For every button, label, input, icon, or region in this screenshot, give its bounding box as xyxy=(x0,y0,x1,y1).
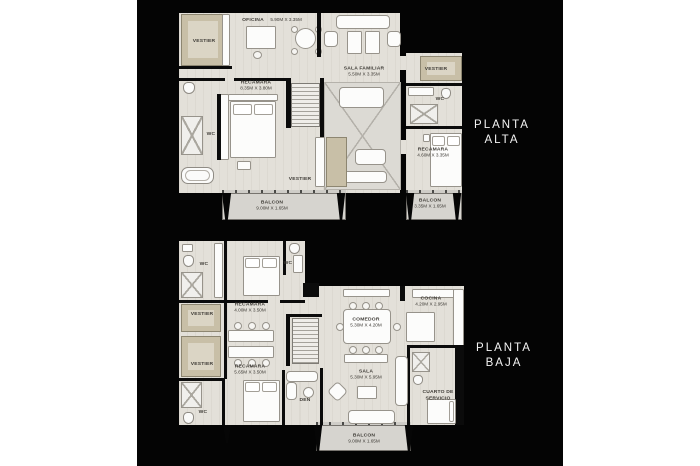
sofa xyxy=(286,382,297,400)
room-dims: 9.00M X 1.65M xyxy=(256,205,288,211)
room-name: VESTIER xyxy=(425,66,448,72)
room-dims: 5.90M X 3.35M xyxy=(270,17,302,23)
office-chair xyxy=(253,51,262,59)
coffee-table xyxy=(357,386,377,399)
wall xyxy=(400,286,405,301)
wall xyxy=(179,300,225,303)
pillow xyxy=(447,136,460,146)
wall xyxy=(286,314,290,366)
planta-alta-title: PLANTA ALTA xyxy=(471,118,533,148)
kitchen-counter xyxy=(453,289,464,347)
room-dims: 4.60M X 3.35M xyxy=(417,152,449,158)
shower xyxy=(181,272,203,298)
wall xyxy=(406,126,462,129)
desk-chair xyxy=(262,322,270,330)
dining-chair xyxy=(349,302,357,310)
room-name: DEN xyxy=(299,397,310,403)
pillow xyxy=(245,258,260,268)
room-label-balcon-baja: BALCON 9.00M X 1.65M xyxy=(348,432,380,444)
dining-chair xyxy=(349,346,357,354)
wall xyxy=(407,345,464,348)
room-name: VESTIER xyxy=(289,176,312,182)
room-dims: 5.30M X 5.95M xyxy=(350,374,382,380)
room-label-wc-w: WC xyxy=(207,131,216,137)
wall xyxy=(286,314,322,317)
room-name: VESTIER xyxy=(191,361,214,367)
floorplan-poster: VESTIER OFICINA 5.90M X 3.35M SALA FAMIL… xyxy=(137,0,563,466)
room-name: WC xyxy=(207,131,216,137)
wall xyxy=(222,378,225,425)
title-line: PLANTA xyxy=(473,341,535,356)
console xyxy=(344,354,388,363)
dining-chair xyxy=(336,323,344,331)
kitchen-island xyxy=(406,312,435,342)
dining-table xyxy=(339,87,384,108)
sofa xyxy=(341,171,387,183)
shower xyxy=(410,104,438,124)
sink-counter xyxy=(293,255,303,273)
building-foot xyxy=(222,425,232,443)
pillow xyxy=(245,382,260,392)
room-dims: 9.00M X 1.65M xyxy=(348,438,380,444)
toilet xyxy=(183,255,194,267)
wardrobe xyxy=(315,137,325,187)
room-dims: 8.35M X 3.80M xyxy=(240,85,272,91)
room-label-oficina: OFICINA 5.90M X 3.35M xyxy=(240,14,303,26)
toilet xyxy=(183,412,194,424)
room-label-wc-e: WC xyxy=(436,96,445,102)
dining-chair xyxy=(375,346,383,354)
room-label-wc-sw: WC xyxy=(199,409,208,415)
room-label-vestier-2: VESTIER xyxy=(191,361,214,367)
wall xyxy=(283,241,286,275)
dining-chair xyxy=(375,302,383,310)
room-dims: 4.00M X 3.50M xyxy=(234,307,266,313)
wall xyxy=(303,283,319,297)
pillow xyxy=(254,104,273,115)
room-label-wc-n: WC xyxy=(284,260,293,266)
toilet xyxy=(289,243,300,254)
desk-chair xyxy=(234,322,242,330)
wall xyxy=(320,368,323,425)
armchair xyxy=(324,31,338,47)
dining-chair xyxy=(362,302,370,310)
round-table xyxy=(295,28,316,49)
room-label-balcon-main-alta: BALCON 9.00M X 1.65M xyxy=(256,199,288,211)
room-name: WC xyxy=(284,260,293,266)
room-label-sala-familiar: SALA FAMILIAR 5.50M X 3.35M xyxy=(344,65,385,77)
bench xyxy=(237,161,251,170)
room-dims: 5.30M X 4.20M xyxy=(350,322,382,328)
room-label-vestier-center: VESTIER xyxy=(289,176,312,182)
pillow xyxy=(449,401,454,422)
desk xyxy=(228,346,274,358)
stairs xyxy=(292,318,319,364)
room-label-comedor: COMEDOR 5.30M X 4.20M xyxy=(350,316,382,328)
title-line: PLANTA xyxy=(471,118,533,133)
room-name: VESTIER xyxy=(193,38,216,44)
sofa xyxy=(355,149,386,165)
sofa xyxy=(286,371,318,382)
sink-counter xyxy=(408,87,434,96)
room-label-sala: SALA 5.30M X 5.95M xyxy=(350,368,382,380)
room-name: WC xyxy=(200,261,209,267)
wall xyxy=(406,83,462,86)
room-label-recamara-s: RECAMARA 5.65M X 3.50M xyxy=(234,363,266,375)
dining-chair xyxy=(393,323,401,331)
wall xyxy=(224,303,227,379)
room-label-balcon-e: BALCON 3.35M X 1.65M xyxy=(414,197,446,209)
desk xyxy=(228,330,274,342)
room-dims: 3.35M X 1.65M xyxy=(414,203,446,209)
room-name: VESTIER xyxy=(191,311,214,317)
dining-chair xyxy=(362,346,370,354)
room-label-cocina: COCINA 4.20M X 2.95M xyxy=(415,295,447,307)
room-name: WC xyxy=(199,409,208,415)
room-label-vestier-1: VESTIER xyxy=(191,311,214,317)
toilet xyxy=(413,375,423,385)
sink xyxy=(182,244,193,252)
bathtub xyxy=(181,167,214,184)
pillow xyxy=(262,382,277,392)
sofa xyxy=(348,410,395,424)
desk-chair xyxy=(248,322,256,330)
wall xyxy=(280,300,305,303)
wardrobe xyxy=(222,14,230,66)
shower xyxy=(181,116,203,155)
room-label-recamara-n: RECAMARA 4.00M X 3.50M xyxy=(234,301,266,313)
room-label-recamara-principal: RECAMARA 8.35M X 3.80M xyxy=(240,79,272,91)
room-label-vestier-nw: VESTIER xyxy=(193,38,216,44)
room-name-line2: SERVICIO xyxy=(422,395,453,401)
closet xyxy=(326,137,347,187)
shower xyxy=(412,352,430,372)
lounge-chair xyxy=(365,31,380,54)
planta-baja-title: PLANTA BAJA xyxy=(473,341,535,371)
pillow xyxy=(233,104,252,115)
bed-headboard xyxy=(228,94,278,101)
room-dims: 5.65M X 3.50M xyxy=(234,369,266,375)
room-label-recamara-e: RECAMARA 4.60M X 3.35M xyxy=(417,146,449,158)
nightstand xyxy=(423,134,430,142)
room-dims: 5.50M X 3.35M xyxy=(344,71,385,77)
room-label-den: DEN xyxy=(299,397,310,403)
wall xyxy=(179,66,232,69)
armchair xyxy=(387,31,401,47)
wall xyxy=(455,348,464,425)
room-name: WC xyxy=(436,96,445,102)
alta-door-opening xyxy=(400,56,406,70)
wall xyxy=(224,241,227,302)
chair xyxy=(291,26,298,33)
console xyxy=(343,289,390,297)
stairs xyxy=(291,83,320,127)
title-line: BAJA xyxy=(473,356,535,371)
room-label-wc-nw: WC xyxy=(200,261,209,267)
chair xyxy=(291,48,298,55)
wall xyxy=(217,94,221,160)
pillow xyxy=(262,258,277,268)
wall xyxy=(317,13,321,57)
room-label-vestier-e: VESTIER xyxy=(425,66,448,72)
page: VESTIER OFICINA 5.90M X 3.35M SALA FAMIL… xyxy=(0,0,700,466)
sofa xyxy=(395,356,408,406)
wall xyxy=(282,370,285,425)
lounge-chair xyxy=(347,31,362,54)
wardrobe xyxy=(214,243,223,298)
wall xyxy=(179,78,225,81)
desk xyxy=(246,26,276,49)
title-line: ALTA xyxy=(471,133,533,148)
shower xyxy=(181,382,202,408)
wall xyxy=(179,378,225,381)
sofa xyxy=(336,15,390,29)
toilet xyxy=(183,82,195,94)
wardrobe xyxy=(220,94,229,160)
room-label-cuarto-servicio: CUARTO DE SERVICIO xyxy=(422,389,453,401)
room-dims: 4.20M X 2.95M xyxy=(415,301,447,307)
room-name: OFICINA xyxy=(242,17,264,23)
pillow xyxy=(432,136,445,146)
